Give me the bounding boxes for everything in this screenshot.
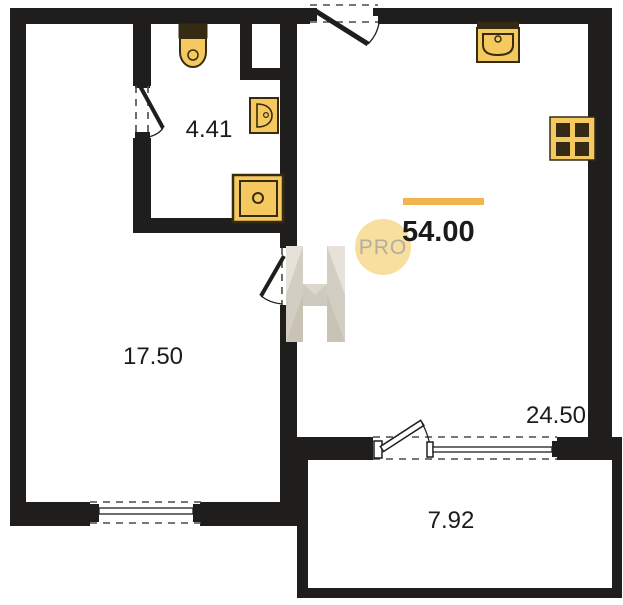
wall-balcony-bottom [297, 588, 622, 598]
balcony-door-hinge [374, 441, 382, 458]
entrance-end-stub [373, 8, 380, 16]
wall-balcony-right [612, 448, 622, 598]
h-watermark-logo [286, 246, 345, 342]
toilet-cistern [179, 24, 207, 38]
bathroom-area-label: 4.41 [186, 116, 233, 143]
wall-balcony-left [297, 458, 308, 598]
floor-plan-canvas: PRO 4.41 17.50 24.50 7.92 54.00 [0, 0, 623, 600]
stove-burner-4 [575, 142, 589, 156]
total-area-accent-bar [403, 198, 484, 205]
room-door-leaf [261, 256, 284, 296]
wall-left [10, 8, 26, 526]
room-window-glass [99, 508, 193, 514]
washbasin-faucet [264, 113, 269, 118]
shower-drain [253, 193, 263, 203]
kitchen-sink-icon [477, 22, 519, 62]
living-area-label: 24.50 [526, 402, 586, 429]
stove-icon [550, 117, 595, 160]
balcony-door-leaf [380, 420, 424, 451]
balcony-window-frame-stub [427, 442, 433, 457]
stove-burner-1 [556, 123, 570, 137]
wall-top-left [10, 8, 310, 24]
wall-shaft-bottom [240, 68, 297, 80]
toilet-icon [179, 24, 207, 67]
shower-tray-icon [233, 175, 283, 222]
room-door-arc [261, 296, 282, 304]
entrance-door-leaf [314, 10, 368, 44]
window-balcony-right-stub [552, 441, 560, 457]
wall-right [588, 8, 612, 460]
entrance-door-arc [368, 23, 379, 44]
balcony-area-label: 7.92 [428, 507, 475, 534]
bathroom-door-leaf [140, 86, 163, 128]
pro-watermark-text: PRO [359, 236, 408, 259]
toilet-drain [188, 50, 198, 60]
washbasin-icon [250, 98, 278, 133]
kitchen-sink-faucet [495, 36, 501, 42]
wall-room-bottom-left [10, 502, 90, 526]
window-room-right-stub [193, 504, 202, 522]
room-area-label: 17.50 [123, 343, 183, 370]
area-labels: 4.41 17.50 24.50 7.92 54.00 [123, 116, 586, 534]
floor-plan: PRO 4.41 17.50 24.50 7.92 54.00 [0, 0, 623, 600]
wall-top-right [378, 8, 612, 24]
stove-burner-2 [575, 123, 589, 137]
wall-bath-left-upper [133, 24, 151, 86]
stove-burner-3 [556, 142, 570, 156]
total-area-label: 54.00 [402, 216, 475, 248]
balcony-window-glass [433, 447, 552, 452]
window-room-left-stub [90, 504, 99, 522]
